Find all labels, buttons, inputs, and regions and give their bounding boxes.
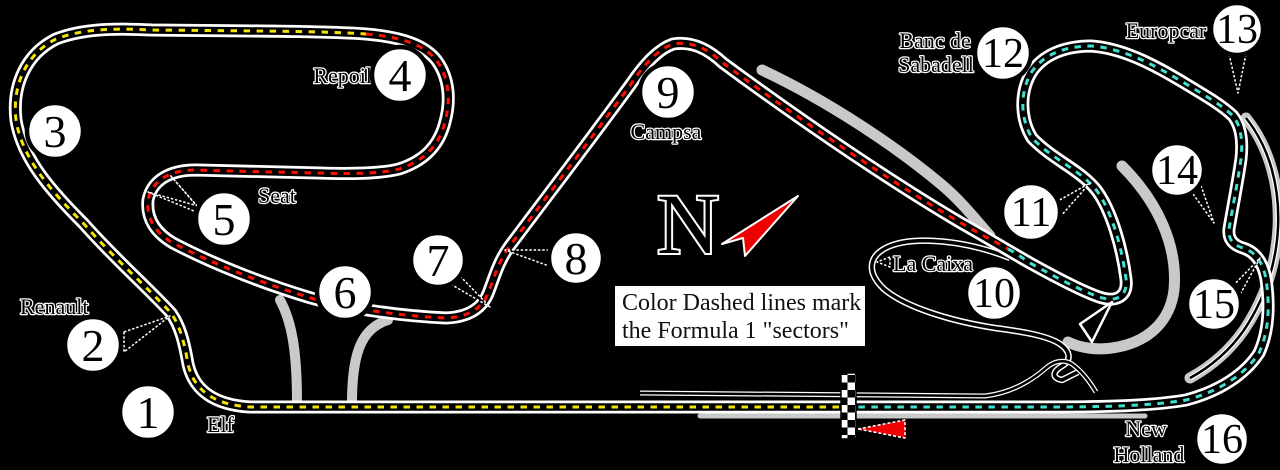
direction-arrow-la-caixa [1080, 302, 1112, 342]
turn-marker-2: 2 [65, 317, 121, 373]
label-banc-de-sabadell-line2: Sabadell [898, 52, 974, 77]
svg-text:4: 4 [389, 50, 412, 101]
start-finish-line [841, 373, 856, 439]
link-road-right [352, 320, 388, 403]
pointer-la-caixa [877, 257, 890, 267]
svg-text:11: 11 [1011, 190, 1051, 236]
label-seat: Seat [258, 183, 296, 208]
turn-marker-15: 15 [1187, 277, 1241, 331]
label-renault: Renault [20, 294, 88, 319]
svg-text:5: 5 [213, 194, 236, 245]
svg-text:14: 14 [1156, 148, 1198, 194]
svg-text:3: 3 [44, 106, 67, 157]
label-elf: Elf [207, 412, 235, 437]
pointer-turn2 [124, 316, 170, 352]
pointer-turn8 [505, 250, 549, 266]
svg-text:13: 13 [1216, 7, 1258, 53]
turn-marker-11: 11 [1002, 183, 1060, 241]
svg-text:15: 15 [1193, 282, 1235, 328]
label-banc-de-sabadell-line1: Banc de [899, 28, 970, 53]
svg-text:1: 1 [137, 387, 160, 438]
turn-marker-10: 10 [966, 265, 1022, 321]
svg-text:16: 16 [1201, 417, 1243, 463]
old-campsa-bypass [762, 70, 990, 236]
pit-entry-road [640, 361, 1096, 396]
turn-marker-8: 8 [549, 231, 603, 285]
turn-marker-3: 3 [27, 103, 83, 159]
svg-text:12: 12 [982, 31, 1024, 77]
turn-marker-1: 1 [120, 384, 176, 440]
compass-north-arrow [722, 196, 798, 256]
legend-line2: the Formula 1 "sectors" [622, 318, 849, 344]
legend: Color Dashed lines mark the Formula 1 "s… [614, 285, 866, 347]
label-repoil: Repoil [313, 63, 372, 88]
label-la-caixa: La Caixa [893, 251, 973, 276]
turn-marker-9: 9 [640, 64, 696, 120]
turn-marker-7: 7 [411, 233, 465, 287]
svg-text:2: 2 [82, 320, 105, 371]
sector1-dashes [15, 29, 852, 407]
legend-line1: Color Dashed lines mark [622, 290, 861, 316]
compass-n-letter: N [657, 176, 719, 272]
label-new-holland-line2: Holland [1114, 442, 1185, 467]
turn-marker-4: 4 [372, 47, 428, 103]
compass: N [657, 176, 798, 272]
label-new-holland-line1: New [1125, 416, 1167, 441]
label-campsa: Campsa [631, 119, 702, 144]
turn-marker-14: 14 [1150, 143, 1204, 197]
svg-text:6: 6 [334, 267, 357, 318]
svg-text:9: 9 [657, 67, 680, 118]
svg-text:10: 10 [973, 271, 1015, 317]
turn-marker-12: 12 [975, 25, 1031, 81]
circuit-map: Repoil Seat Renault Elf Campsa La Caixa … [0, 0, 1280, 470]
turn-marker-16: 16 [1195, 412, 1249, 466]
svg-text:7: 7 [427, 235, 450, 286]
turn-marker-13: 13 [1211, 3, 1263, 55]
svg-text:8: 8 [565, 233, 588, 284]
label-europcar: Europcar [1126, 18, 1207, 43]
pointer-turn13 [1229, 54, 1246, 93]
circuit-svg: Repoil Seat Renault Elf Campsa La Caixa … [0, 0, 1280, 470]
turn-marker-5: 5 [196, 191, 252, 247]
turn-marker-6: 6 [317, 264, 373, 320]
direction-arrow-start-finish [858, 420, 905, 438]
link-road-left [280, 300, 297, 403]
